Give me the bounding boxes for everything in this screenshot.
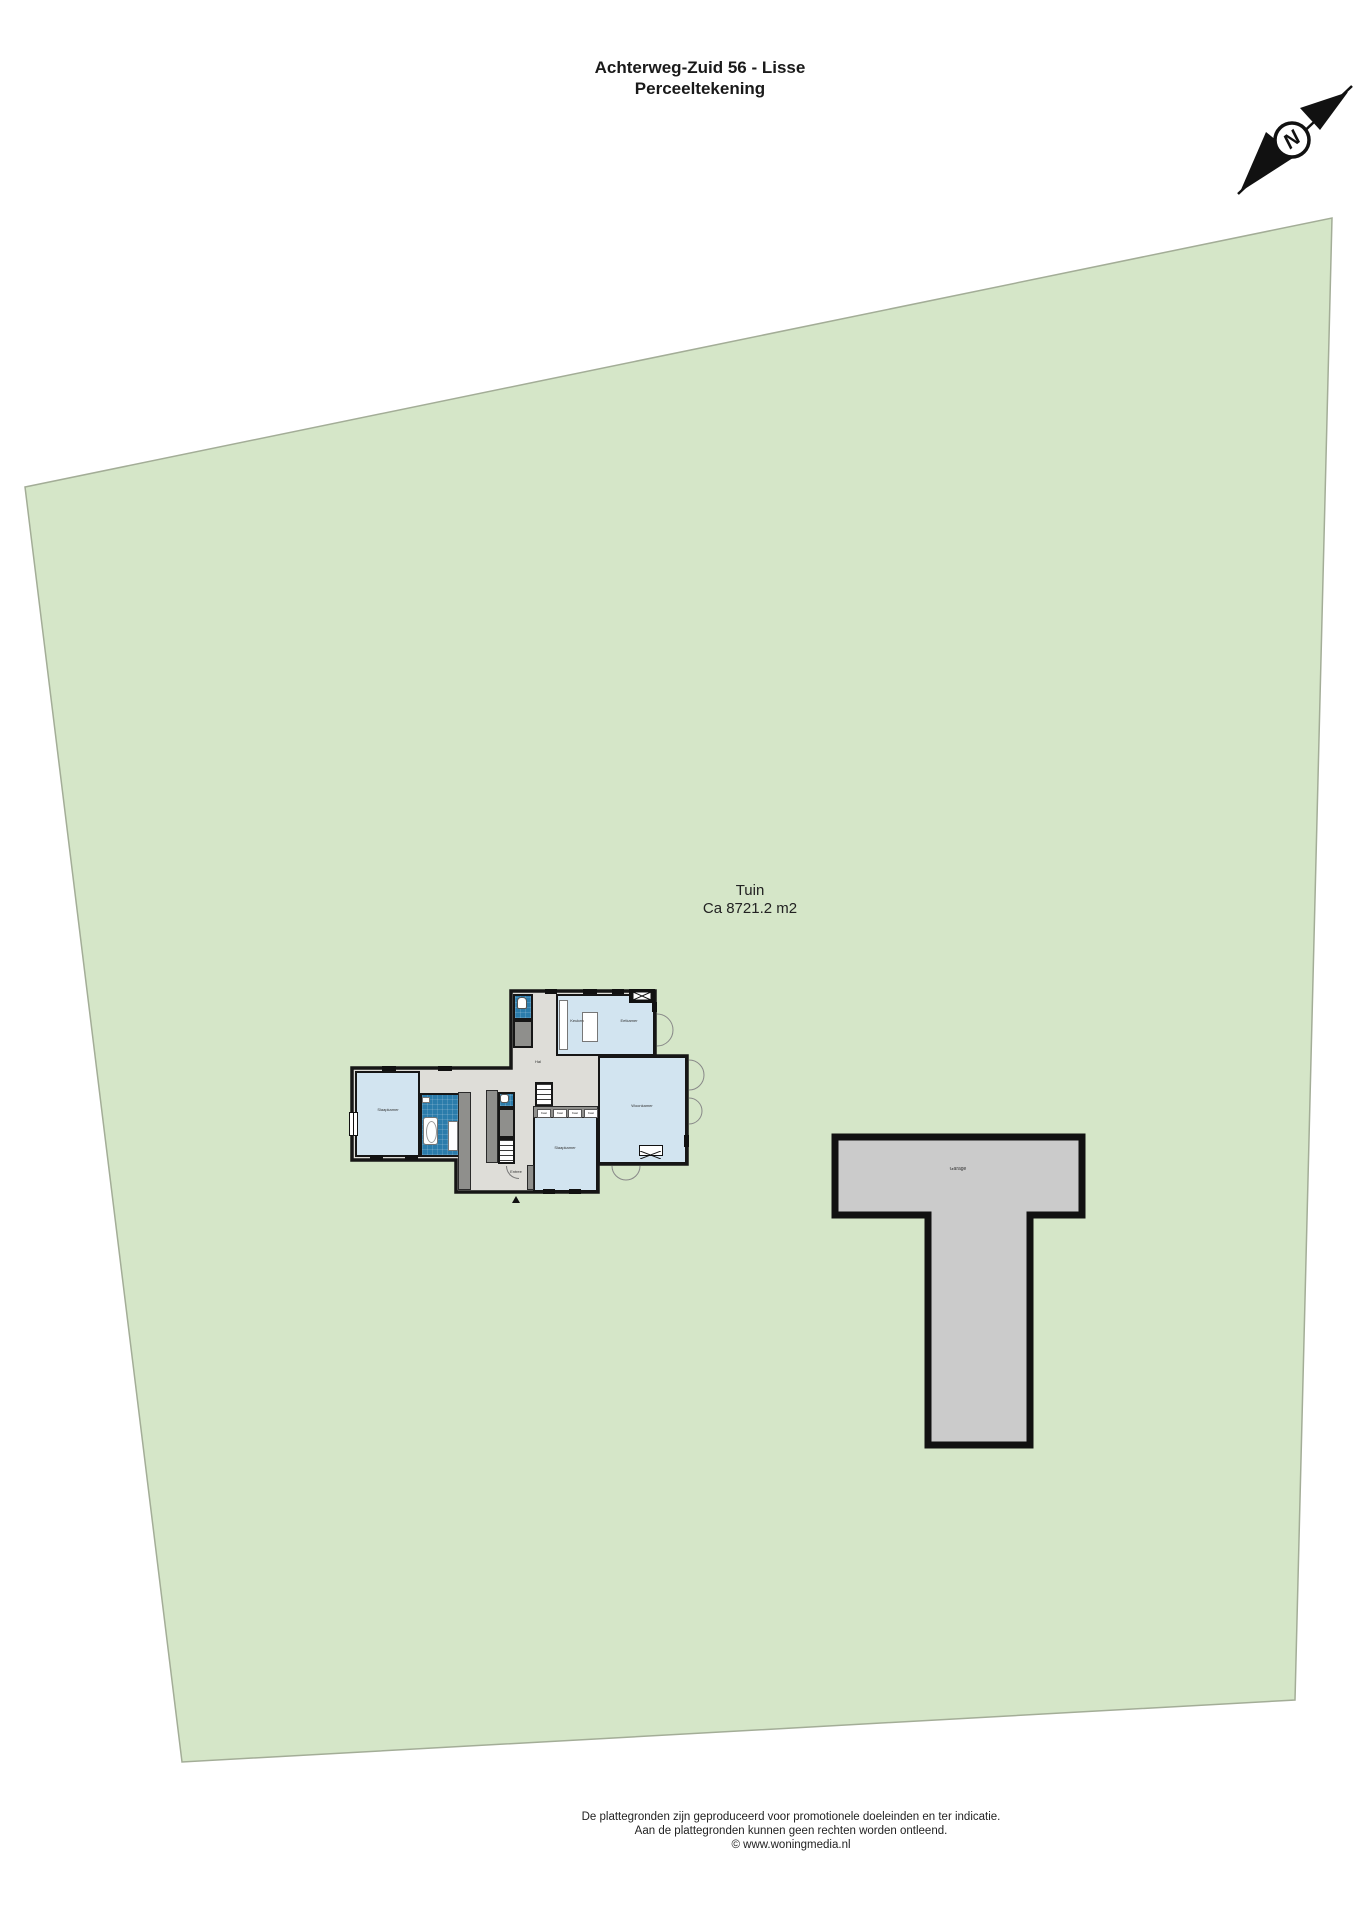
footer-disclaimer-line2: Aan de plattegronden kunnen geen rechten… [441,1824,1141,1838]
entry-closet [527,1165,534,1190]
label-bedroom-bottom: Slaapkamer [545,1146,585,1154]
label-garage: Garage [918,1167,998,1176]
window-dash [545,989,557,994]
closet-chip: Kast [584,1109,598,1118]
window-dash [405,1155,418,1160]
window-dash [612,989,624,994]
label-bedroom-left: Slaapkamer [368,1108,408,1116]
window-seat-box [639,1145,663,1156]
entrance-arrow [512,1196,520,1203]
wardrobe-strip-right [486,1090,498,1163]
closet-row: Kast Kast Kast Kast [533,1106,598,1118]
window-dash [652,1002,657,1012]
window-dash [583,989,597,994]
label-living: Woonkamer [620,1104,664,1112]
window-dash [569,1189,581,1194]
window-dash [382,1066,396,1071]
plot-label: Tuin Ca 8721.2 m2 [650,882,850,918]
label-dining: Eetkamer [612,1019,646,1027]
bathroom-sink [422,1097,430,1103]
shower [448,1121,458,1151]
label-hall: Hal [530,1060,546,1068]
page-subtitle: Perceeltekening [480,78,920,99]
window-dash [370,1155,383,1160]
window-dash [543,1189,555,1194]
plot-area: Ca 8721.2 m2 [650,900,850,918]
closet-chip: Kast [537,1109,551,1118]
footer-disclaimer-line1: De plattegronden zijn geproduceerd voor … [441,1810,1141,1824]
room-closet-mid [498,1108,515,1138]
toilet-fixture-top [517,997,527,1009]
staircase-center [535,1082,553,1107]
bathtub [423,1117,438,1145]
window-dash [684,1135,689,1147]
kitchen-island [582,1012,598,1042]
perceeltekening-page: N Kast Kast Kast Kast [0,0,1358,1920]
label-entrance: Entree [505,1170,527,1178]
room-closet-top [513,1020,533,1048]
staircase-west [498,1138,515,1164]
page-title: Achterweg-Zuid 56 - Lisse [480,57,920,78]
page-header: Achterweg-Zuid 56 - Lisse Perceeltekenin… [480,57,920,99]
window-dash [438,1066,452,1071]
page-footer: De plattegronden zijn geproduceerd voor … [441,1810,1141,1852]
wardrobe-strip-left [458,1092,471,1190]
footer-copyright: © www.woningmedia.nl [441,1838,1141,1852]
fireplace [629,989,655,1003]
window-box-left [349,1112,358,1136]
closet-chip: Kast [568,1109,582,1118]
closet-chip: Kast [553,1109,567,1118]
label-kitchen: Keuken [560,1019,594,1027]
plot-name: Tuin [650,882,850,900]
floorplan-layer: Kast Kast Kast Kast [0,0,1358,1920]
toilet-fixture-mid [500,1094,509,1103]
